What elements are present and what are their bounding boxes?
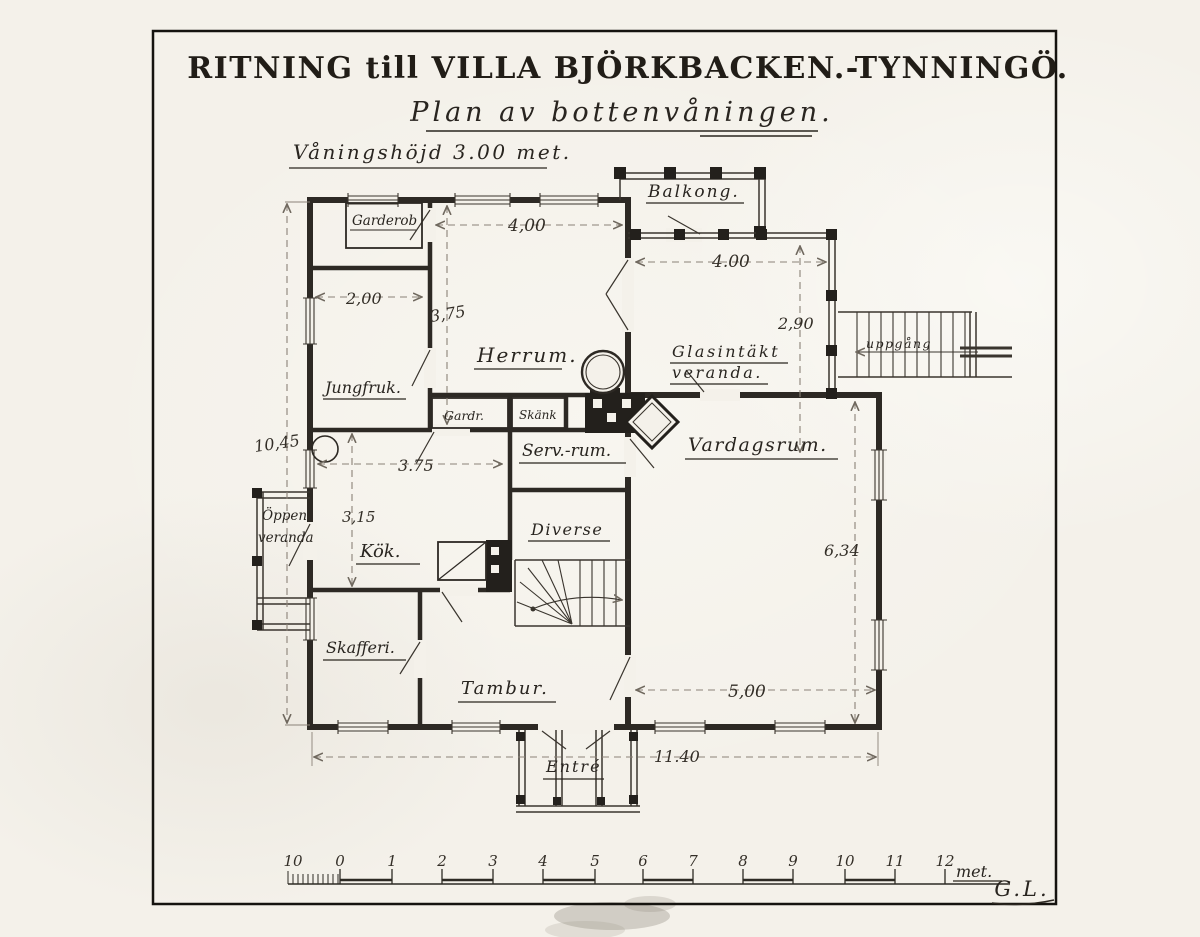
room-label-vardagsrum: Vardagsrum. bbox=[688, 434, 828, 456]
dimension-lines bbox=[285, 202, 878, 766]
dim-house-depth: 10,45 bbox=[253, 431, 301, 456]
room-label-oppen-1: Öppen bbox=[262, 507, 307, 524]
scale-num-1: 1 bbox=[387, 852, 397, 870]
dim-veranda-width: 4.00 bbox=[711, 252, 750, 272]
room-label-diverse: Diverse bbox=[530, 520, 603, 539]
scale-num-12: 12 bbox=[935, 852, 954, 870]
room-label-garderob: Garderob bbox=[352, 213, 417, 229]
dim-veranda-depth: 2,90 bbox=[777, 314, 814, 333]
round-stove bbox=[582, 351, 624, 393]
dim-house-width: 11.40 bbox=[654, 747, 700, 766]
scale-num-10: 10 bbox=[835, 852, 855, 870]
scale-num-11: 11 bbox=[885, 852, 904, 870]
dim-herrum-depth: 3,75 bbox=[429, 302, 467, 326]
scale-unit: met. bbox=[956, 862, 992, 881]
scale-num-9: 9 bbox=[788, 852, 798, 870]
room-label-balkong: Balkong. bbox=[647, 182, 740, 202]
border-frame bbox=[153, 31, 1056, 904]
room-label-uppgang: uppgång bbox=[866, 336, 932, 351]
room-label-tambur: Tambur. bbox=[461, 678, 549, 699]
room-label-herrum: Herrum. bbox=[476, 343, 578, 367]
drawing-subtitle: Plan av bottenvåningen. bbox=[409, 96, 833, 128]
scale-num-8: 8 bbox=[738, 852, 748, 870]
scale-num-4: 4 bbox=[537, 852, 548, 870]
dim-jungfru-width: 2,00 bbox=[345, 289, 382, 308]
central-stair bbox=[515, 560, 630, 626]
drawing-title: RITNING till VILLA BJÖRKBACKEN.-TYNNINGÖ… bbox=[187, 49, 1069, 86]
room-label-kok: Kök. bbox=[359, 541, 400, 562]
dim-vardagsrum-width: 5,00 bbox=[728, 682, 766, 702]
title-block: RITNING till VILLA BJÖRKBACKEN.-TYNNINGÖ… bbox=[187, 49, 1069, 168]
room-label-entre: Entré bbox=[545, 757, 602, 776]
paper-stains bbox=[545, 896, 676, 937]
storey-height-note: Våningshöjd 3.00 met. bbox=[293, 140, 572, 164]
dim-vardagsrum-depth: 6,34 bbox=[824, 541, 860, 560]
floor-plan-svg: RITNING till VILLA BJÖRKBACKEN.-TYNNINGÖ… bbox=[0, 0, 1200, 937]
signature-block: G.L. bbox=[992, 877, 1054, 904]
dim-kok-depth: 3,15 bbox=[342, 508, 375, 526]
scale-num-2: 2 bbox=[436, 852, 447, 870]
scale-num-5: 5 bbox=[590, 852, 600, 870]
dim-kok-width: 3.75 bbox=[398, 456, 434, 475]
scale-num-10L: 10 bbox=[283, 852, 303, 870]
room-label-glasintakt-2: veranda. bbox=[672, 363, 763, 382]
room-label-glasintakt-1: Glasintäkt bbox=[672, 342, 780, 361]
dim-herrum-width: 4,00 bbox=[507, 216, 546, 236]
scanned-floor-plan-drawing: RITNING till VILLA BJÖRKBACKEN.-TYNNINGÖ… bbox=[0, 0, 1200, 937]
room-label-gardr: Gardr. bbox=[444, 408, 484, 423]
room-label-jungfruk: Jungfruk. bbox=[322, 378, 401, 397]
scale-bar: 10 0 1 2 3 4 5 6 7 8 9 10 11 12 met. bbox=[283, 852, 1008, 884]
room-label-skank: Skänk bbox=[519, 408, 557, 422]
room-label-skafferi: Skafferi. bbox=[326, 638, 395, 657]
boiler bbox=[312, 436, 338, 462]
room-label-oppen-2: veranda bbox=[258, 530, 314, 546]
room-label-servrum: Serv.-rum. bbox=[522, 441, 611, 461]
scale-num-7: 7 bbox=[688, 852, 698, 870]
scale-num-3: 3 bbox=[488, 852, 498, 870]
scale-num-0: 0 bbox=[335, 852, 345, 870]
signature: G.L. bbox=[994, 877, 1049, 901]
scale-num-6: 6 bbox=[638, 852, 648, 870]
